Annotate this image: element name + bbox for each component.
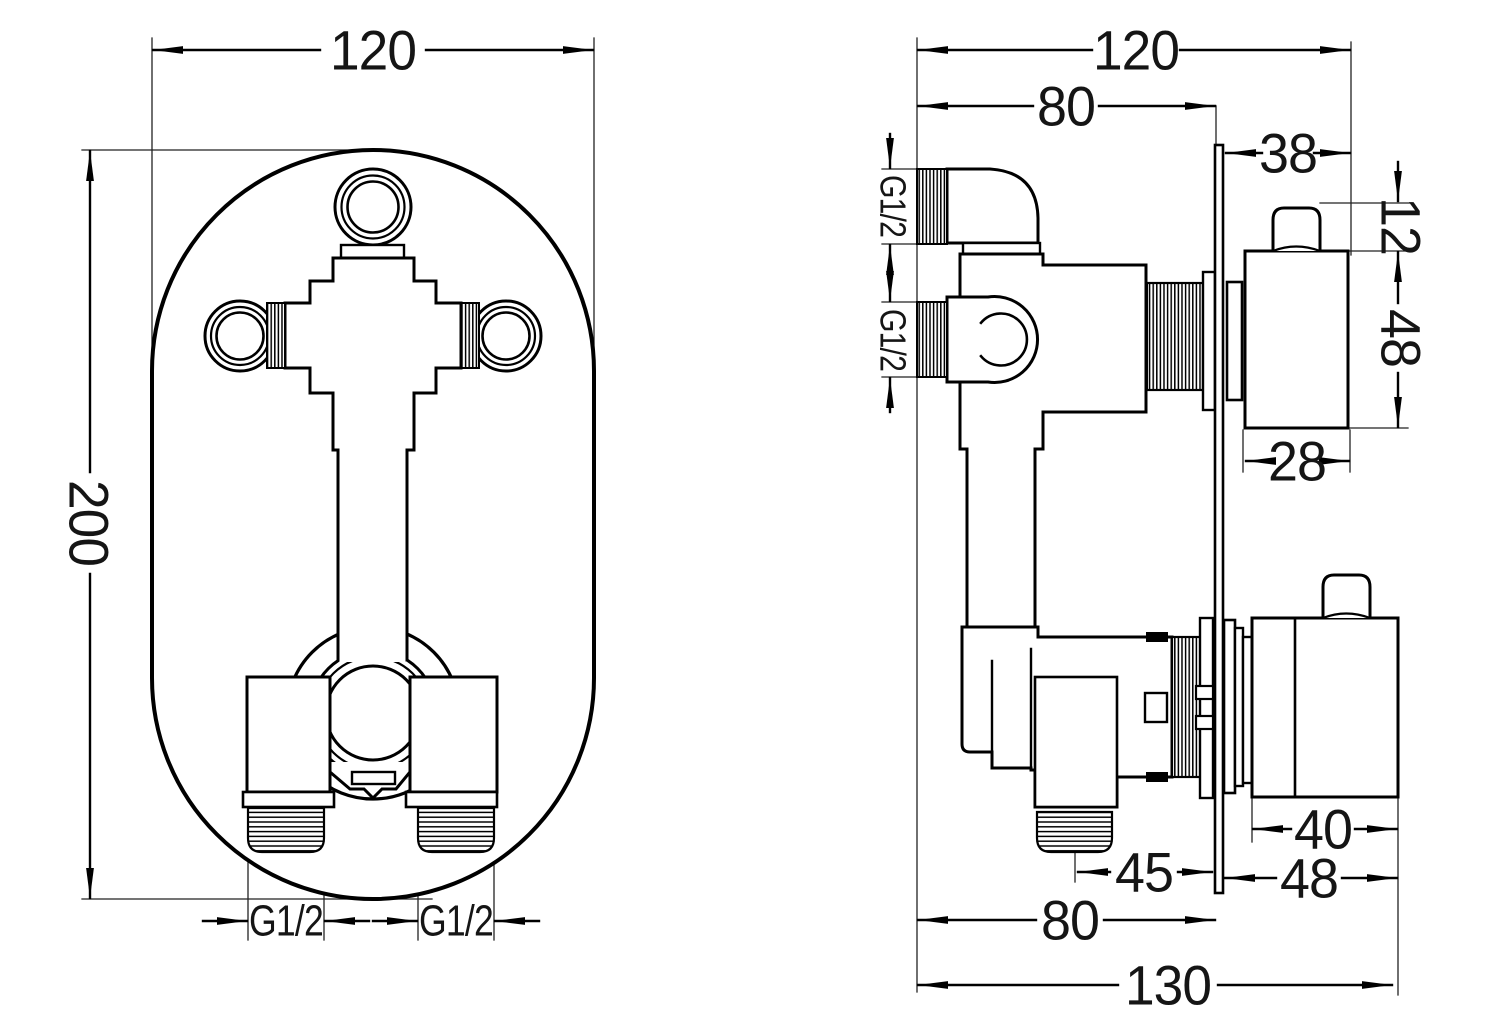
inlet-elbow (947, 169, 1038, 243)
clip-bottom (1146, 772, 1168, 782)
bottom-knob-stem (1323, 575, 1370, 618)
side-top-knob (1227, 208, 1348, 428)
front-height-dim: 200 (58, 480, 121, 566)
locknut-tab-2 (1196, 716, 1213, 729)
side-inlet-mid-label: G1/2 (873, 309, 914, 371)
top-knob-body (1245, 251, 1348, 428)
front-width-dim: 120 (330, 19, 416, 82)
stem-fill (340, 450, 406, 662)
front-thread-right-label: G1/2 (419, 897, 493, 946)
wall-plate-side (1215, 145, 1223, 893)
side-knob-depth-dim: 28 (1268, 430, 1326, 493)
technical-drawing-page: 120 200 G1/2 G1/2 (0, 0, 1500, 1035)
outlet-thread (1037, 812, 1112, 852)
side-knob-stem-dim: 12 (1370, 197, 1433, 255)
upper-cartridge-thread (1147, 283, 1203, 390)
bottom-knob-body (1252, 618, 1398, 797)
mid-inlet-port (947, 297, 1038, 383)
side-upper-valve (917, 169, 1215, 449)
top-port-flange (341, 245, 404, 258)
outlet-block (1035, 677, 1117, 807)
side-overall-width-dim: 120 (1093, 19, 1179, 82)
diverter-bottom-tab (352, 772, 395, 784)
side-overall-depth-dim: 130 (1125, 954, 1211, 1017)
inlet-thread-mid (917, 302, 947, 377)
side-knob-height-dim: 48 (1370, 309, 1433, 367)
side-plate-to-lower-knob-dim: 48 (1280, 847, 1338, 910)
right-connector-block (410, 677, 497, 792)
right-port-thread-collar (461, 303, 479, 368)
side-recess-depth-dim: 80 (1037, 75, 1095, 138)
clip-top (1146, 632, 1168, 642)
left-thread-lip (243, 792, 334, 807)
upper-locknut (1203, 272, 1215, 410)
top-knob-escutcheon (1227, 282, 1242, 400)
shower-valve-dimension-drawing: 120 200 G1/2 G1/2 (0, 0, 1500, 1035)
side-recess-depth-bottom-dim: 80 (1041, 889, 1099, 952)
side-view: 120 80 38 12 48 28 G1/2 G1/2 40 48 45 80… (873, 19, 1433, 1017)
right-inlet-thread (418, 808, 494, 852)
side-bottom-knob (1224, 575, 1398, 797)
right-thread-lip (406, 792, 497, 807)
inlet-thread-top (917, 169, 947, 244)
locknut-tab-1 (1196, 686, 1213, 699)
lower-locknut (1200, 618, 1213, 798)
left-inlet-thread (248, 808, 324, 852)
bottom-knob-escutcheon (1224, 620, 1235, 793)
side-connecting-pipe (967, 446, 1035, 627)
front-thread-left-label: G1/2 (249, 897, 323, 946)
side-lower-valve (962, 618, 1213, 852)
top-knob-stem (1273, 208, 1320, 251)
front-view: 120 200 G1/2 G1/2 (58, 19, 595, 946)
elbow-flange (963, 243, 1040, 254)
cartridge-tab (1145, 693, 1167, 722)
left-connector-block (247, 677, 330, 792)
side-inlet-top-label: G1/2 (873, 175, 914, 237)
lower-cartridge-thread (1172, 637, 1203, 777)
left-port-thread-collar (267, 303, 285, 368)
side-outlet-to-plate-dim: 45 (1115, 841, 1173, 904)
side-plate-to-knob-dim: 38 (1259, 122, 1317, 185)
diverter-inner-circle (326, 666, 420, 760)
